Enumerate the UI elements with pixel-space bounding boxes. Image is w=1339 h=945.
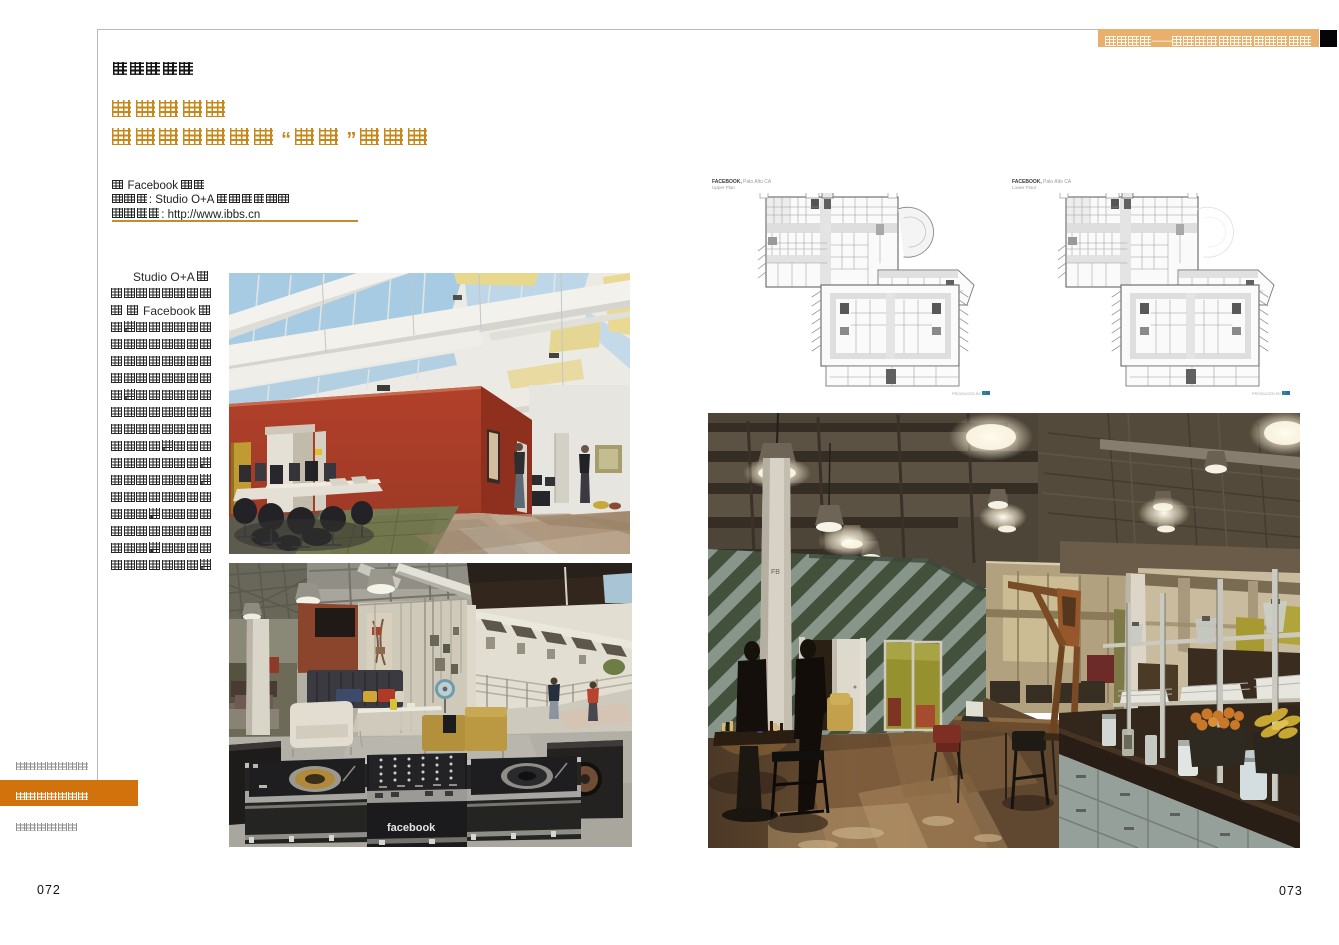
svg-text:FB: FB [771, 569, 780, 576]
svg-text:facebook: facebook [387, 822, 436, 834]
